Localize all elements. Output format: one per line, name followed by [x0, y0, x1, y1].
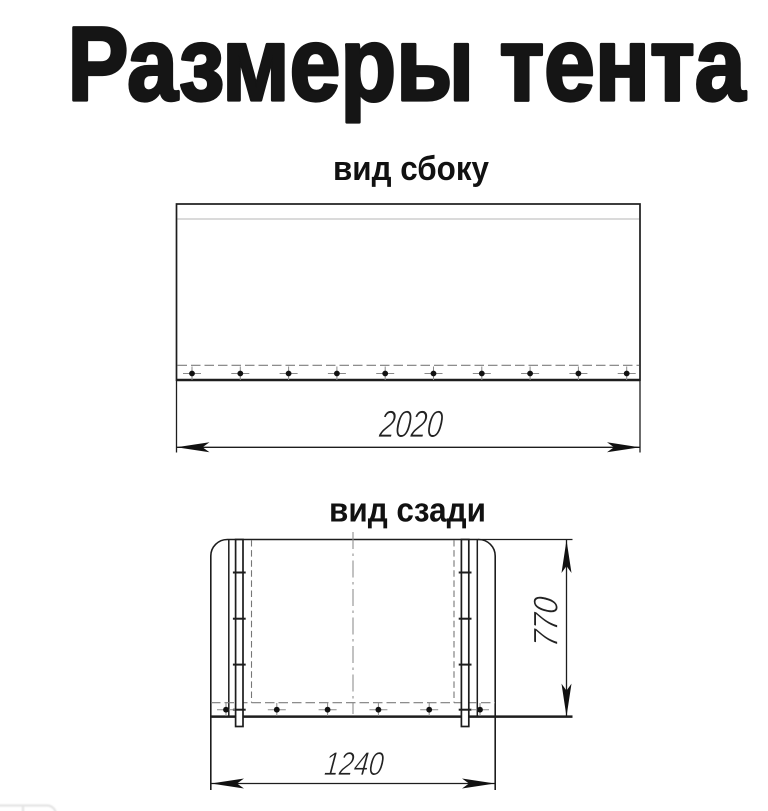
svg-text:вид сбоку: вид сбоку — [333, 150, 489, 188]
svg-text:2020: 2020 — [377, 404, 445, 446]
svg-text:1240: 1240 — [323, 746, 386, 783]
svg-text:вид сзади: вид сзади — [329, 492, 486, 530]
svg-text:770: 770 — [528, 595, 566, 649]
svg-text:Размеры тента: Размеры тента — [68, 6, 747, 123]
